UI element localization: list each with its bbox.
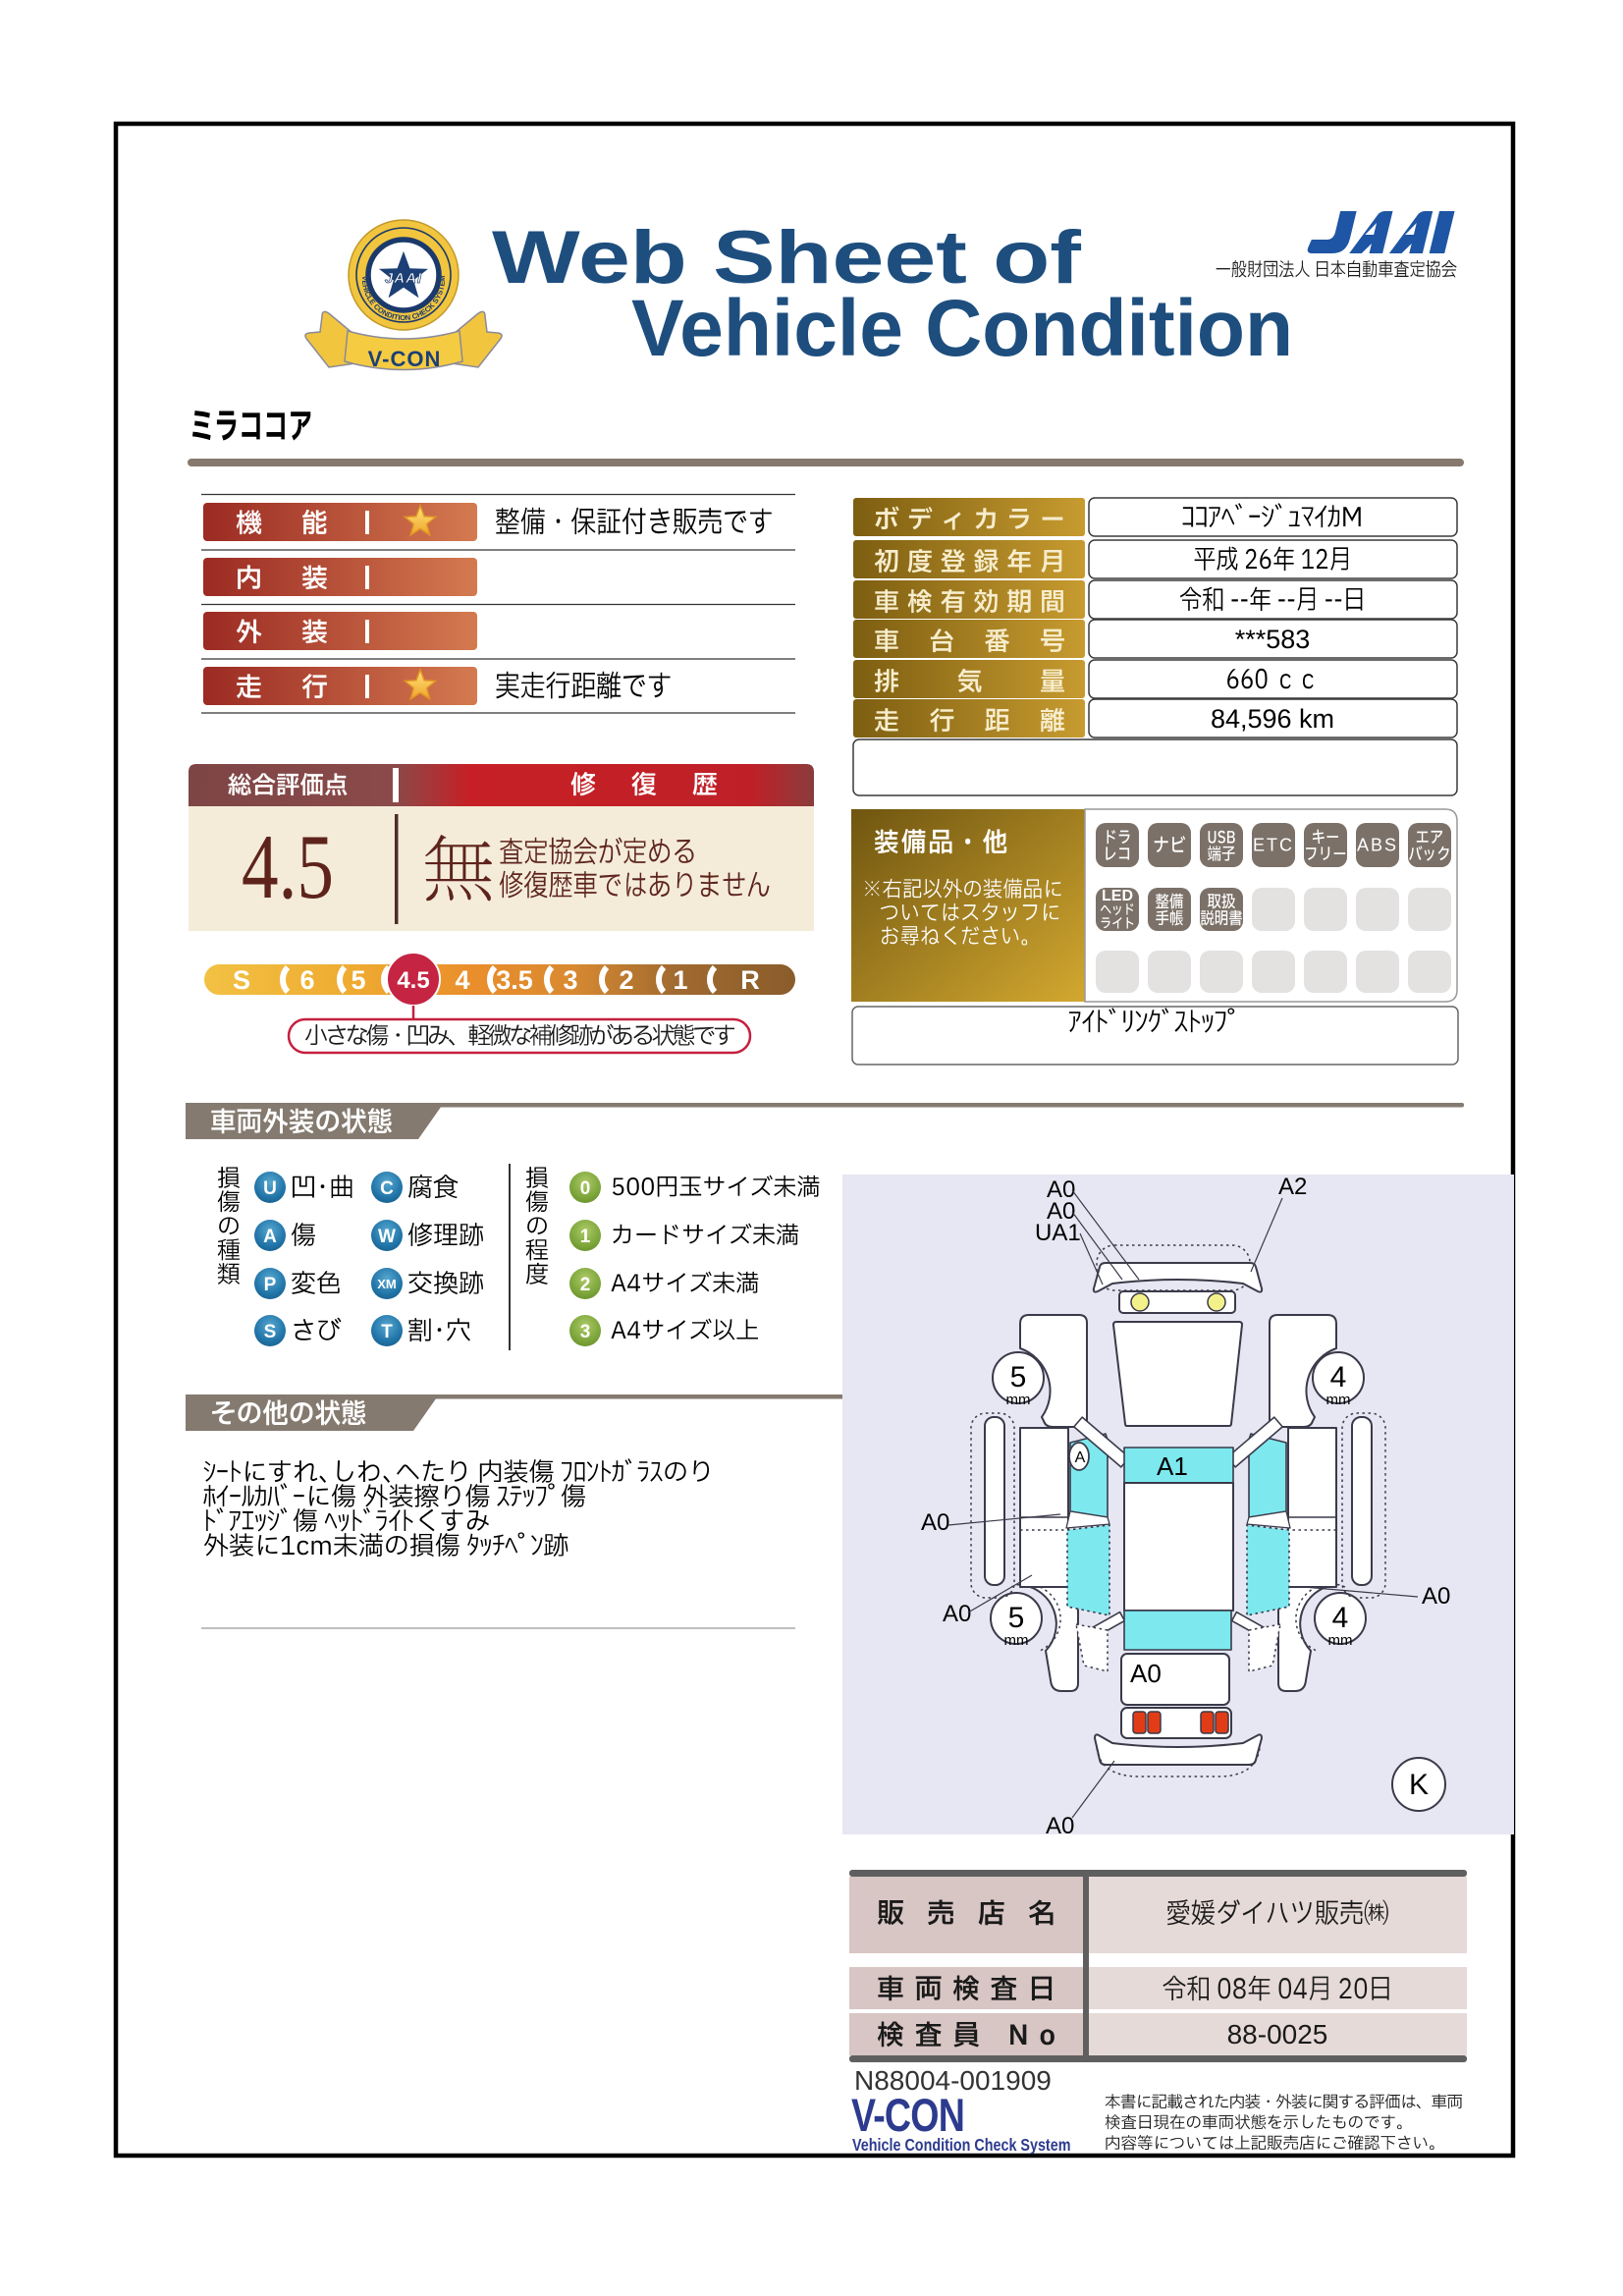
svg-text:4: 4 [1330,1361,1347,1394]
svg-text:5: 5 [351,965,365,995]
svg-text:A0: A0 [1422,1583,1450,1610]
svg-text:V-CON: V-CON [851,2090,964,2142]
svg-text:A0: A0 [943,1601,971,1627]
svg-text:XM: XM [377,1277,397,1291]
svg-text:3: 3 [580,1322,591,1342]
svg-text:UA1: UA1 [1035,1220,1081,1246]
svg-text:2: 2 [619,965,633,995]
svg-text:Vehicle Condition: Vehicle Condition [631,284,1293,373]
svg-text:4.5: 4.5 [242,816,334,918]
svg-text:LED: LED [1102,888,1133,904]
svg-text:A0: A0 [921,1509,949,1536]
svg-text:A: A [1075,1449,1086,1466]
svg-text:4: 4 [1332,1602,1349,1634]
svg-text:mm: mm [1004,1632,1029,1649]
svg-text:S: S [264,1322,277,1342]
svg-text:2: 2 [580,1275,591,1295]
svg-text:A: A [263,1227,277,1247]
svg-text:4: 4 [455,965,469,995]
svg-text:JAAI: JAAI [385,270,422,287]
svg-text:S: S [233,965,250,995]
svg-text:3.5: 3.5 [496,965,533,995]
svg-text:4.5: 4.5 [397,967,429,994]
svg-text:mm: mm [1326,1392,1351,1408]
svg-text:V-CON: V-CON [368,347,442,371]
svg-text:Vehicle Condition Check System: Vehicle Condition Check System [852,2137,1070,2156]
svg-text:A2: A2 [1278,1174,1307,1200]
svg-text:A0: A0 [1046,1813,1074,1839]
svg-text:1: 1 [580,1227,591,1247]
svg-text:A0: A0 [1130,1659,1162,1688]
svg-text:U: U [263,1178,277,1199]
svg-text:6: 6 [299,965,314,995]
svg-text:T: T [381,1322,393,1342]
svg-text:R: R [740,965,760,995]
svg-text:5: 5 [1008,1602,1025,1634]
svg-text:0: 0 [580,1178,591,1199]
svg-text:3: 3 [563,965,577,995]
svg-text:1: 1 [673,965,687,995]
svg-text:P: P [264,1275,277,1295]
svg-text:C: C [380,1178,394,1199]
svg-text:ETC: ETC [1253,836,1294,855]
svg-text:A1: A1 [1157,1451,1188,1481]
svg-text:W: W [378,1227,396,1247]
svg-text:mm: mm [1328,1632,1353,1649]
svg-text:ABS: ABS [1357,836,1398,855]
svg-text:K: K [1409,1769,1429,1801]
svg-text:5: 5 [1010,1361,1027,1394]
svg-text:88-0025: 88-0025 [1227,2019,1328,2050]
svg-text:84,596 km: 84,596 km [1211,704,1334,734]
svg-text:***583: ***583 [1235,625,1311,654]
svg-text:mm: mm [1006,1392,1031,1408]
